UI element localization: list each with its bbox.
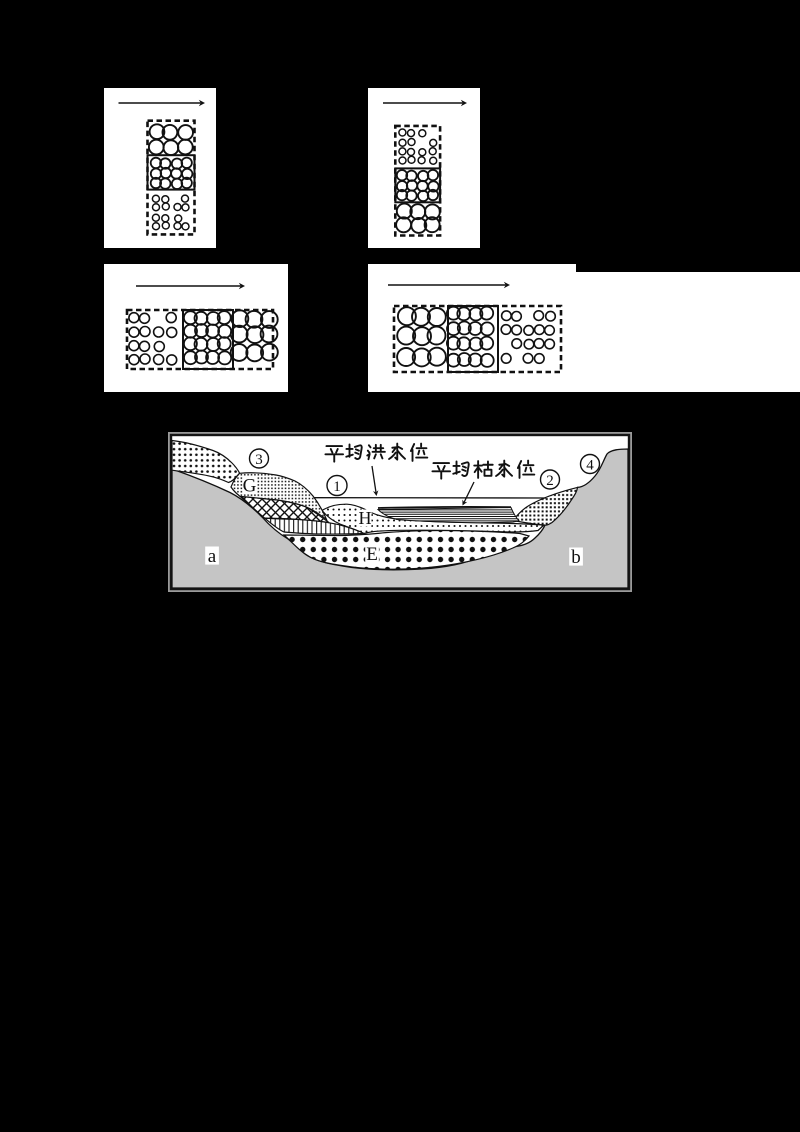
svg-text:2: 2 — [546, 473, 554, 489]
svg-text:G: G — [243, 475, 257, 496]
svg-text:3: 3 — [255, 452, 263, 468]
svg-text:b: b — [571, 547, 581, 568]
svg-text:1: 1 — [333, 479, 341, 495]
svg-text:E: E — [366, 544, 378, 565]
svg-text:H: H — [359, 508, 372, 528]
svg-text:4: 4 — [586, 457, 594, 473]
svg-text:a: a — [208, 546, 217, 567]
